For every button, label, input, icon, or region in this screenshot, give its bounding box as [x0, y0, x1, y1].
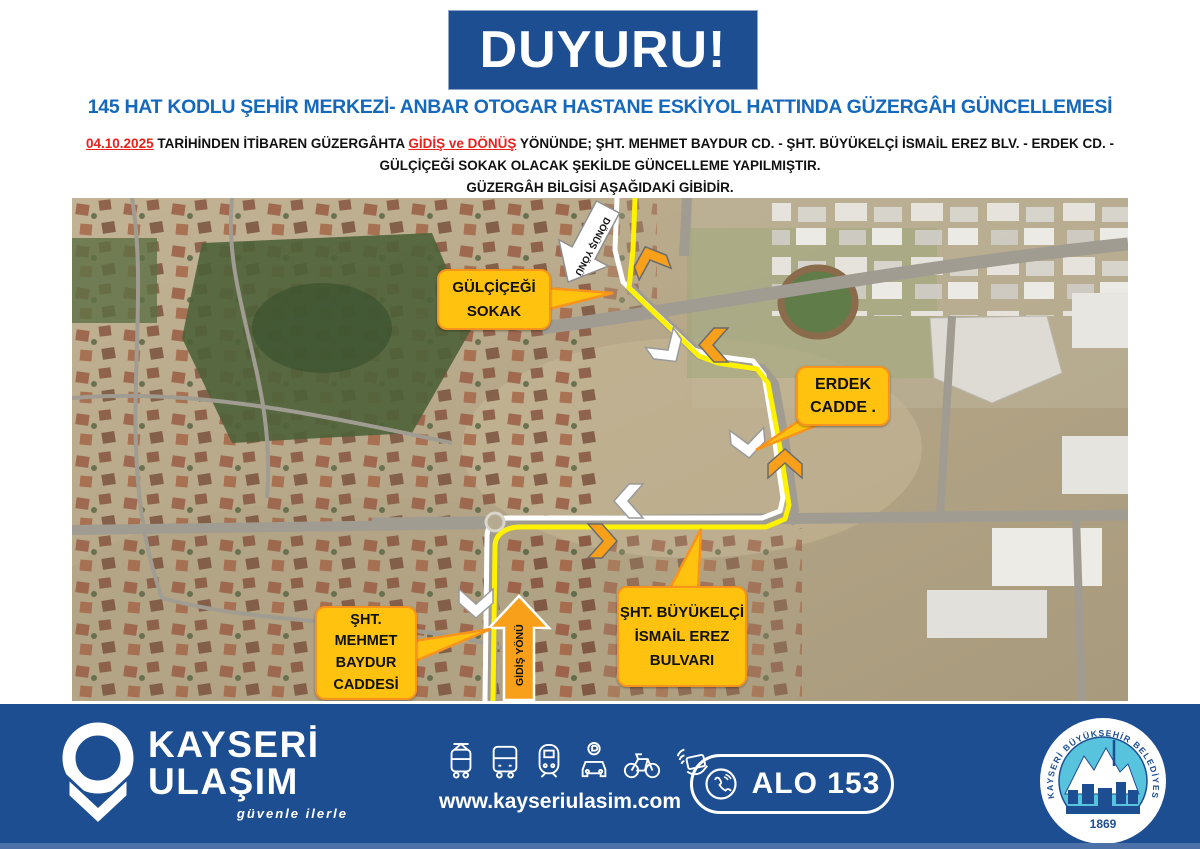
hotline-badge: ALO 153 — [690, 754, 894, 814]
label-gulcicegi-sokak: GÜLÇİÇEĞİ SOKAK — [437, 269, 551, 330]
detail-highlight: GİDİŞ ve DÖNÜŞ — [408, 136, 516, 151]
satellite-map-image: DÖNÜŞ YÖNÜ GİDİŞ YÖNÜ — [72, 198, 1128, 701]
route-title: 145 HAT KODLU ŞEHİR MERKEZİ- ANBAR OTOGA… — [0, 96, 1200, 119]
brand-line1: KAYSERİ — [148, 726, 348, 763]
label-ismail-erez-bulvari: ŞHT. BÜYÜKELÇİ İSMAİL EREZ BULVARI — [617, 586, 747, 687]
municipality-seal: 1869 KAYSERİ BÜYÜKŞEHİR BELEDİYESİ — [1038, 716, 1168, 846]
brand-line2: ULAŞIM — [148, 763, 348, 800]
label-mehmet-baydur-caddesi: ŞHT. MEHMET BAYDUR CADDESİ — [315, 606, 417, 700]
footer-band: KAYSERİ ULAŞIM güvenle ilerle — [0, 704, 1200, 843]
roundabout — [486, 513, 504, 531]
footer-accent-strip — [0, 843, 1200, 849]
kayseri-ulasim-pin-logo — [48, 718, 148, 833]
detail-text: 04.10.2025 TARİHİNDEN İTİBAREN GÜZERGÂHT… — [85, 133, 1115, 176]
detail-part1: TARİHİNDEN İTİBAREN GÜZERGÂHTA — [157, 136, 404, 151]
banner-box: DUYURU! — [448, 10, 758, 90]
brand-tagline: güvenle ilerle — [148, 806, 348, 821]
route-map: DÖNÜŞ YÖNÜ GİDİŞ YÖNÜ GÜLÇİÇEĞİ SOKAK ER… — [72, 198, 1128, 701]
phone-icon — [704, 767, 738, 801]
label-erdek-cadde: ERDEK CADDE . — [796, 366, 890, 426]
hotline-number: ALO 153 — [752, 767, 881, 801]
outbound-direction-label: GİDİŞ YÖNÜ — [513, 624, 526, 686]
car-parking-icon — [576, 740, 612, 782]
transport-icons — [444, 740, 712, 782]
detail-date: 04.10.2025 — [86, 136, 154, 151]
tram-icon — [444, 740, 478, 782]
website-url: www.kayseriulasim.com — [420, 790, 700, 814]
bus-icon — [488, 740, 522, 782]
brand-wordmark: KAYSERİ ULAŞIM güvenle ilerle — [148, 726, 348, 821]
map-subtitle: GÜZERGÂH BİLGİSİ AŞAĞIDAKİ GİBİDİR. — [0, 180, 1200, 195]
seal-year: 1869 — [1090, 817, 1117, 831]
banner-text: DUYURU! — [480, 20, 727, 80]
train-icon — [532, 740, 566, 782]
bicycle-icon — [622, 740, 662, 782]
announcement-poster: DUYURU! 145 HAT KODLU ŞEHİR MERKEZİ- ANB… — [0, 0, 1200, 849]
